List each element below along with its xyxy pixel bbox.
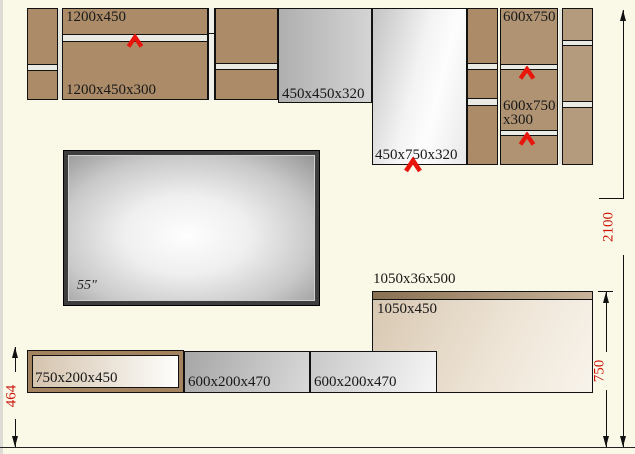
shelf-divider [28,64,57,71]
dimension-value-750: 750 [592,358,609,385]
dimension-value-2100: 2100 [601,210,618,244]
shelf-divider [563,40,592,46]
base-cabinet-750-front: 750x200x450 [32,355,179,388]
floor-line [0,447,635,448]
base-cabinet-750[interactable]: 750x200x450 [27,350,184,393]
dimension-line-2100 [623,255,624,447]
tv[interactable]: 55" [63,150,320,306]
shelf-line [208,33,215,34]
shelf-divider [216,63,277,70]
dimension-value-464: 464 [4,383,21,410]
open-direction-chevron-icon [518,66,536,81]
cabinet-label: 750x200x450 [35,370,118,386]
wall-side-column-right[interactable] [562,8,593,165]
cabinet-label: 1050x450 [377,301,437,317]
vertical-divider-panel [208,8,215,100]
dimension-arrow-icon [12,347,18,358]
shelf-divider [563,101,592,108]
shelf-label: 1050x36x500 [373,271,456,287]
tv-screen: 55" [68,155,315,301]
wall-niche-450[interactable]: 450x450x320 [278,8,372,103]
wall-side-column-mid[interactable] [467,8,498,165]
base-cabinet-600-left[interactable]: 600x200x470 [184,351,310,393]
furniture-layout-canvas: 1200x450 1200x450x300 450x450x320 450x75… [0,0,635,454]
cabinet-label: 450x450x320 [282,86,365,102]
dimension-arrow-icon [620,10,626,21]
dimension-line-2100 [623,10,624,198]
dimension-arrow-icon [603,436,609,447]
base-cabinet-600-right[interactable]: 600x200x470 [310,351,437,393]
open-direction-chevron-icon [403,157,423,174]
cabinet-label: x300 [503,112,533,128]
shelf-divider [468,98,497,106]
dimension-arrow-icon [620,436,626,447]
wall-side-column-left[interactable] [27,8,58,100]
dimension-arrow-icon [603,292,609,303]
cabinet-label: 600x200x470 [188,374,271,390]
cabinet-label: 600x200x470 [314,374,397,390]
cabinet-label: 1200x450 [66,9,126,25]
wall-panel-450x750[interactable]: 450x750x320 [372,8,467,165]
cabinet-label: 1200x450x300 [66,82,156,98]
cabinet-label: 600x750 [503,9,556,25]
open-direction-chevron-icon [518,132,536,147]
wall-cabinet-square[interactable] [215,8,278,100]
wall-cabinet-1200[interactable]: 1200x450 1200x450x300 [62,8,208,100]
shelf-divider [468,63,497,70]
dimension-arrow-icon [12,436,18,447]
dimension-tick [599,198,624,199]
tv-size-label: 55" [77,278,97,294]
open-direction-chevron-icon [126,34,144,49]
